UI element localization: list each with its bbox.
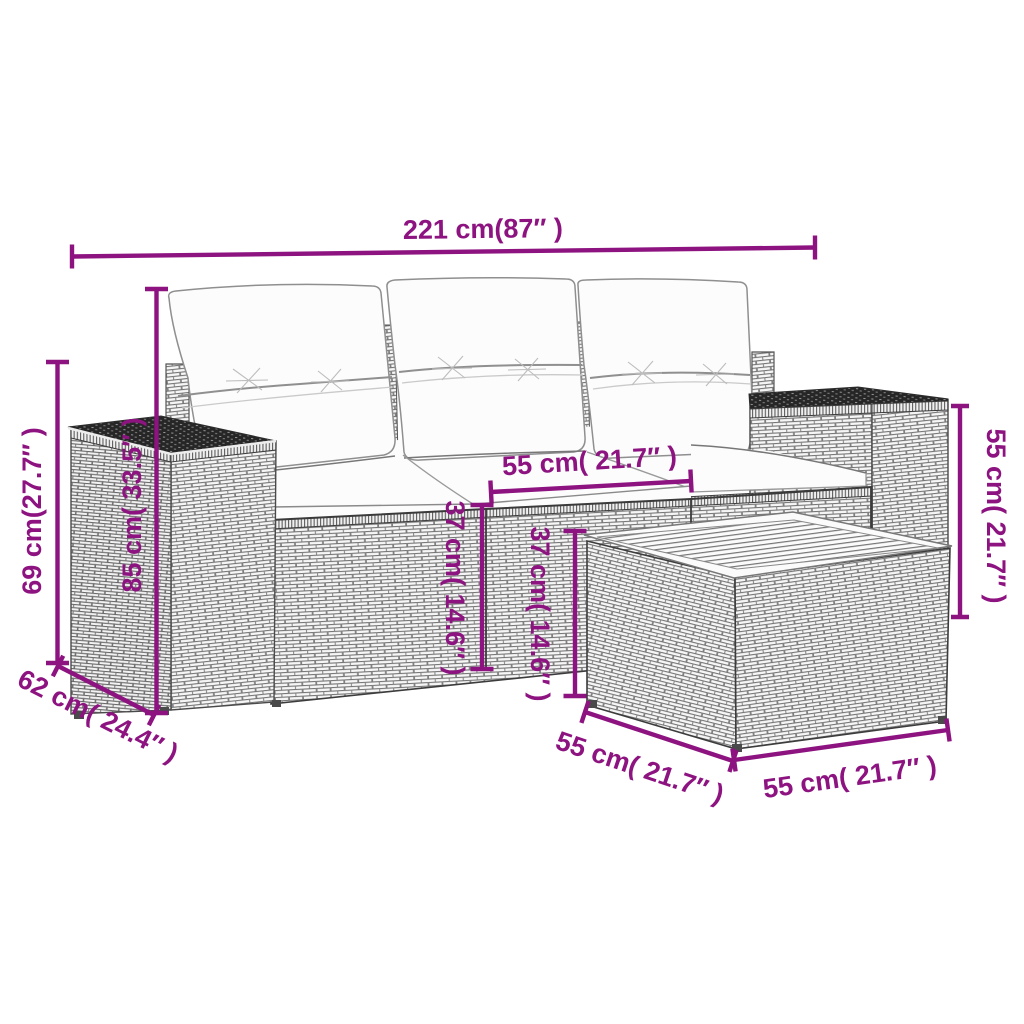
svg-text:69 cm(27.7″ ): 69 cm(27.7″ ) — [17, 427, 47, 595]
svg-text:37 cm( 14.6″ ): 37 cm( 14.6″ ) — [525, 526, 555, 701]
svg-text:85 cm( 33.5″ ): 85 cm( 33.5″ ) — [117, 417, 147, 592]
svg-text:37 cm( 14.6″ ): 37 cm( 14.6″ ) — [440, 500, 470, 675]
svg-text:55 cm( 21.7″ ): 55 cm( 21.7″ ) — [981, 428, 1011, 603]
svg-text:221 cm(87″ ): 221 cm(87″ ) — [403, 213, 563, 245]
